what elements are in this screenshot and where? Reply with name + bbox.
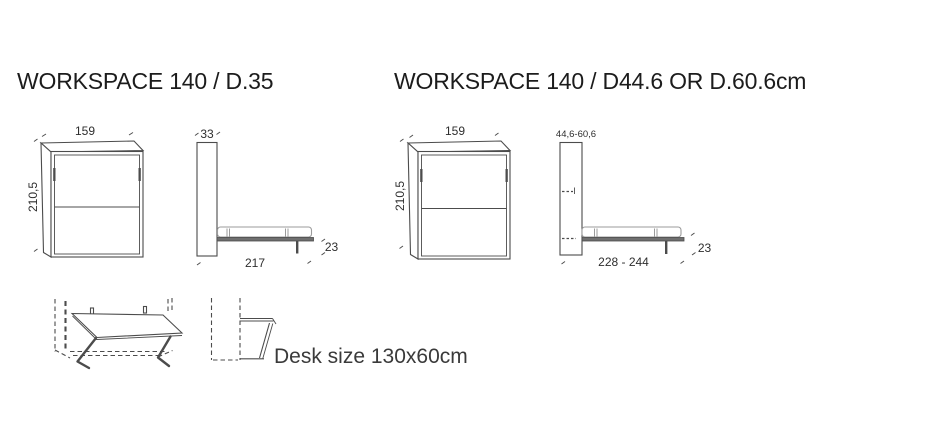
section-title-left: WORKSPACE 140 / D.35	[17, 68, 273, 95]
desk-side-view	[212, 298, 277, 360]
bed-platform	[217, 238, 314, 242]
bed-platform	[582, 238, 684, 242]
desk-size-caption: Desk size 130x60cm	[274, 345, 468, 369]
cabinet-side-profile	[197, 143, 217, 257]
right-front-view	[408, 141, 510, 259]
bed-leg	[296, 241, 298, 254]
door-handle-left	[53, 168, 55, 181]
diagram-canvas	[0, 0, 939, 425]
dim-right-front-height: 210,5	[393, 176, 407, 216]
right-side-view	[560, 143, 684, 256]
dim-left-side-length: 217	[235, 256, 275, 270]
cabinet-left-face	[41, 143, 51, 257]
dim-right-side-bed-height: 23	[693, 241, 716, 255]
cabinet-left-face	[408, 143, 418, 259]
door-handle-right	[506, 169, 508, 182]
section-title-right: WORKSPACE 140 / D44.6 OR D.60.6cm	[394, 68, 806, 95]
dim-left-front-width: 159	[65, 124, 105, 138]
desk-hook-right	[144, 307, 147, 314]
door-handle-left	[420, 169, 422, 182]
mattress	[218, 227, 312, 237]
dim-left-front-height: 210,5	[26, 177, 40, 217]
cabinet-front-panel	[418, 152, 510, 260]
dim-right-side-depth: 44,6-60,6	[545, 129, 607, 140]
bed-leg	[665, 241, 667, 254]
desk-perspective-view	[55, 298, 182, 368]
dim-right-front-width: 159	[435, 124, 475, 138]
cabinet-front-panel	[51, 152, 143, 258]
desk-top	[72, 314, 182, 338]
dim-right-side-length: 228 - 244	[588, 255, 659, 269]
cabinet-top-face	[408, 141, 510, 152]
desk-leg-left	[78, 338, 97, 368]
dimension-diagram-page: WORKSPACE 140 / D.35 WORKSPACE 140 / D44…	[0, 0, 939, 425]
dim-left-side-bed-height: 23	[320, 240, 343, 254]
door-handle-right	[139, 168, 141, 181]
left-front-view	[41, 141, 143, 257]
cabinet-top-face	[41, 141, 143, 152]
dim-left-side-depth: 33	[190, 127, 224, 141]
left-side-view	[197, 143, 314, 257]
